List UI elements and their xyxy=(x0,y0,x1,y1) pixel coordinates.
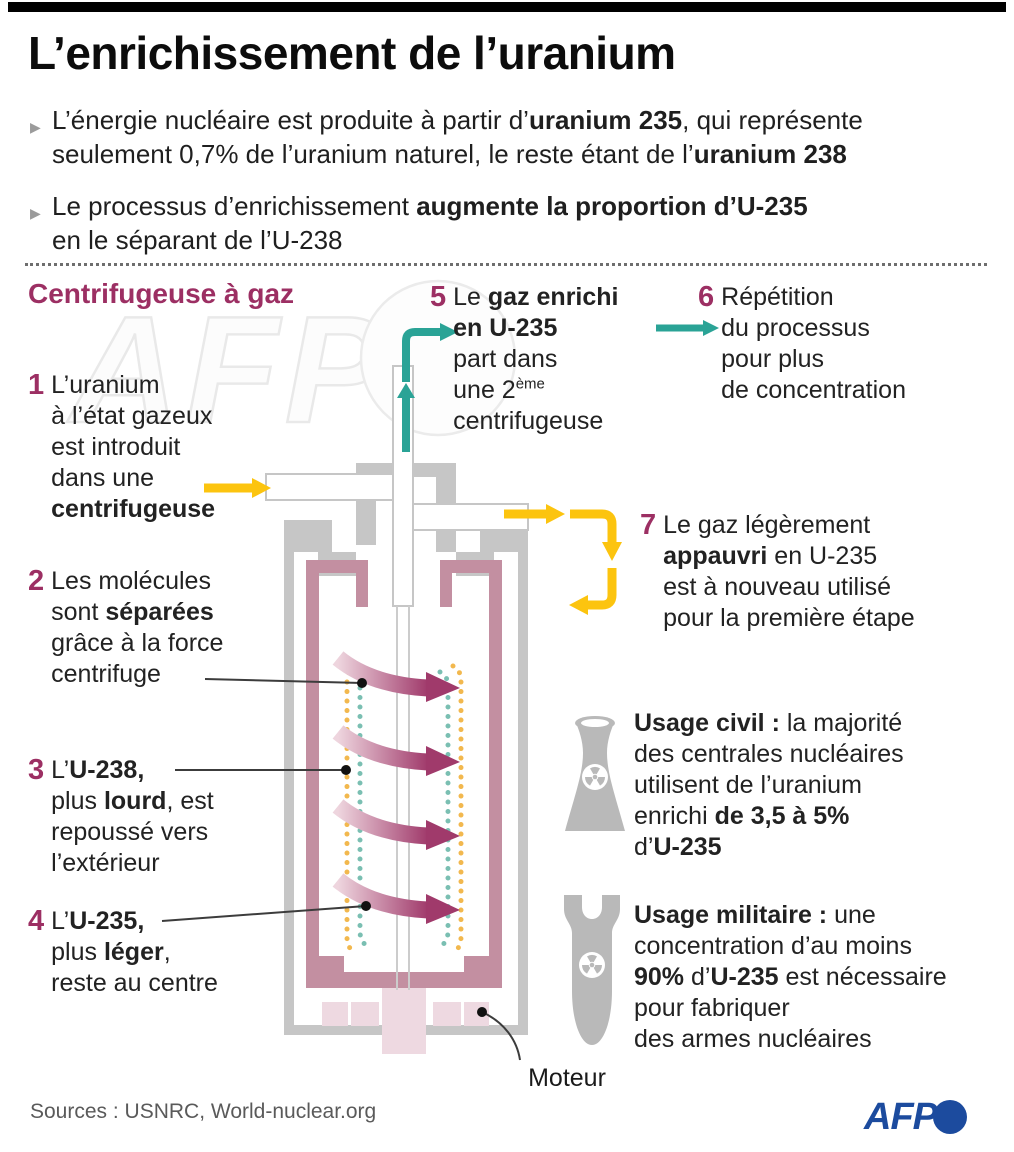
text-line: en le séparant de l’U-238 xyxy=(52,223,1004,257)
text-line: de concentration xyxy=(721,375,906,406)
text-line: L’énergie nucléaire est produite à parti… xyxy=(52,103,1004,137)
step-2: 2 Les molécules sont séparées grâce à la… xyxy=(28,566,223,690)
text-line: en U-235 xyxy=(453,313,618,344)
bullet-triangle-icon: ▶ xyxy=(30,110,41,144)
step-text: Les molécules sont séparées grâce à la f… xyxy=(51,566,223,690)
usage-military-text: Usage militaire : une concentration d’au… xyxy=(634,900,947,1055)
text-line: appauvri en U-235 xyxy=(663,541,915,572)
infographic-page: AFP xyxy=(0,0,1014,1152)
step-number: 1 xyxy=(28,370,44,401)
text-line: dans une xyxy=(51,463,215,494)
text-line: centrifugeuse xyxy=(453,406,618,437)
afp-logo-text: AFP xyxy=(864,1096,937,1139)
bullet-triangle-icon: ▶ xyxy=(30,196,41,230)
step-text: Répétition du processus pour plus de con… xyxy=(721,282,906,406)
text-line: reste au centre xyxy=(51,968,218,999)
text-line: Les molécules xyxy=(51,566,223,597)
intro-bullet-2: ▶ Le processus d’enrichissement augmente… xyxy=(30,189,1004,257)
text-layer: L’enrichissement de l’uranium ▶ L’énergi… xyxy=(0,0,1014,1152)
text-line: du processus xyxy=(721,313,906,344)
text-line: L’U-235, xyxy=(51,906,218,937)
text-line: Le processus d’enrichissement augmente l… xyxy=(52,189,1004,223)
text-line: des armes nucléaires xyxy=(634,1024,947,1055)
text-line: pour fabriquer xyxy=(634,993,947,1024)
step-4: 4 L’U-235, plus léger, reste au centre xyxy=(28,906,218,999)
page-title: L’enrichissement de l’uranium xyxy=(28,26,676,80)
step-text: L’U-235, plus léger, reste au centre xyxy=(51,906,218,999)
step-text: Le gaz enrichi en U-235 part dans une 2è… xyxy=(453,282,618,437)
text-line: grâce à la force xyxy=(51,628,223,659)
step-number: 6 xyxy=(698,282,714,313)
text-line: enrichi de 3,5 à 5% xyxy=(634,801,904,832)
step-text: L’U-238, plus lourd, est repoussé vers l… xyxy=(51,755,214,879)
step-number: 3 xyxy=(28,755,44,786)
top-bar xyxy=(8,2,1006,12)
intro-bullet-1: ▶ L’énergie nucléaire est produite à par… xyxy=(30,103,1004,171)
motor-label: Moteur xyxy=(512,1064,622,1093)
step-1: 1 L’uranium à l’état gazeux est introdui… xyxy=(28,370,215,525)
text-line: pour plus xyxy=(721,344,906,375)
text-line: d’U-235 xyxy=(634,832,904,863)
text-line: repoussé vers xyxy=(51,817,214,848)
text-line: part dans xyxy=(453,344,618,375)
text-line: des centrales nucléaires xyxy=(634,739,904,770)
text-line: seulement 0,7% de l’uranium naturel, le … xyxy=(52,137,1004,171)
text-line: centrifuge xyxy=(51,659,223,690)
text-line: l’extérieur xyxy=(51,848,214,879)
text-line: centrifugeuse xyxy=(51,494,215,525)
text-line: Usage civil : la majorité xyxy=(634,708,904,739)
step-text: Le gaz légèrement appauvri en U-235 est … xyxy=(663,510,915,634)
usage-civil-text: Usage civil : la majorité des centrales … xyxy=(634,708,904,863)
section-label: Centrifugeuse à gaz xyxy=(28,278,294,310)
text-line: est introduit xyxy=(51,432,215,463)
step-text: L’uranium à l’état gazeux est introduit … xyxy=(51,370,215,525)
text-line: est à nouveau utilisé xyxy=(663,572,915,603)
text-line: Le gaz légèrement xyxy=(663,510,915,541)
text-line: à l’état gazeux xyxy=(51,401,215,432)
sources-note: Sources : USNRC, World-nuclear.org xyxy=(30,1100,376,1124)
step-6: 6 Répétition du processus pour plus de c… xyxy=(698,282,906,406)
text-line: une 2ème xyxy=(453,375,618,406)
text-line: Le gaz enrichi xyxy=(453,282,618,313)
text-line: pour la première étape xyxy=(663,603,915,634)
text-line: plus lourd, est xyxy=(51,786,214,817)
afp-logo-circle-icon xyxy=(933,1100,967,1134)
text-line: 90% d’U-235 est nécessaire xyxy=(634,962,947,993)
step-3: 3 L’U-238, plus lourd, est repoussé vers… xyxy=(28,755,214,879)
dotted-divider xyxy=(25,263,987,266)
text-line: Usage militaire : une xyxy=(634,900,947,931)
text-line: L’uranium xyxy=(51,370,215,401)
step-number: 2 xyxy=(28,566,44,597)
step-number: 5 xyxy=(430,282,446,313)
text-line: Répétition xyxy=(721,282,906,313)
step-number: 7 xyxy=(640,510,656,541)
text-line: concentration d’au moins xyxy=(634,931,947,962)
text-line: utilisent de l’uranium xyxy=(634,770,904,801)
step-7: 7 Le gaz légèrement appauvri en U-235 es… xyxy=(640,510,915,634)
text-line: sont séparées xyxy=(51,597,223,628)
text-line: plus léger, xyxy=(51,937,218,968)
step-number: 4 xyxy=(28,906,44,937)
text-line: L’U-238, xyxy=(51,755,214,786)
step-5: 5 Le gaz enrichi en U-235 part dans une … xyxy=(430,282,619,437)
